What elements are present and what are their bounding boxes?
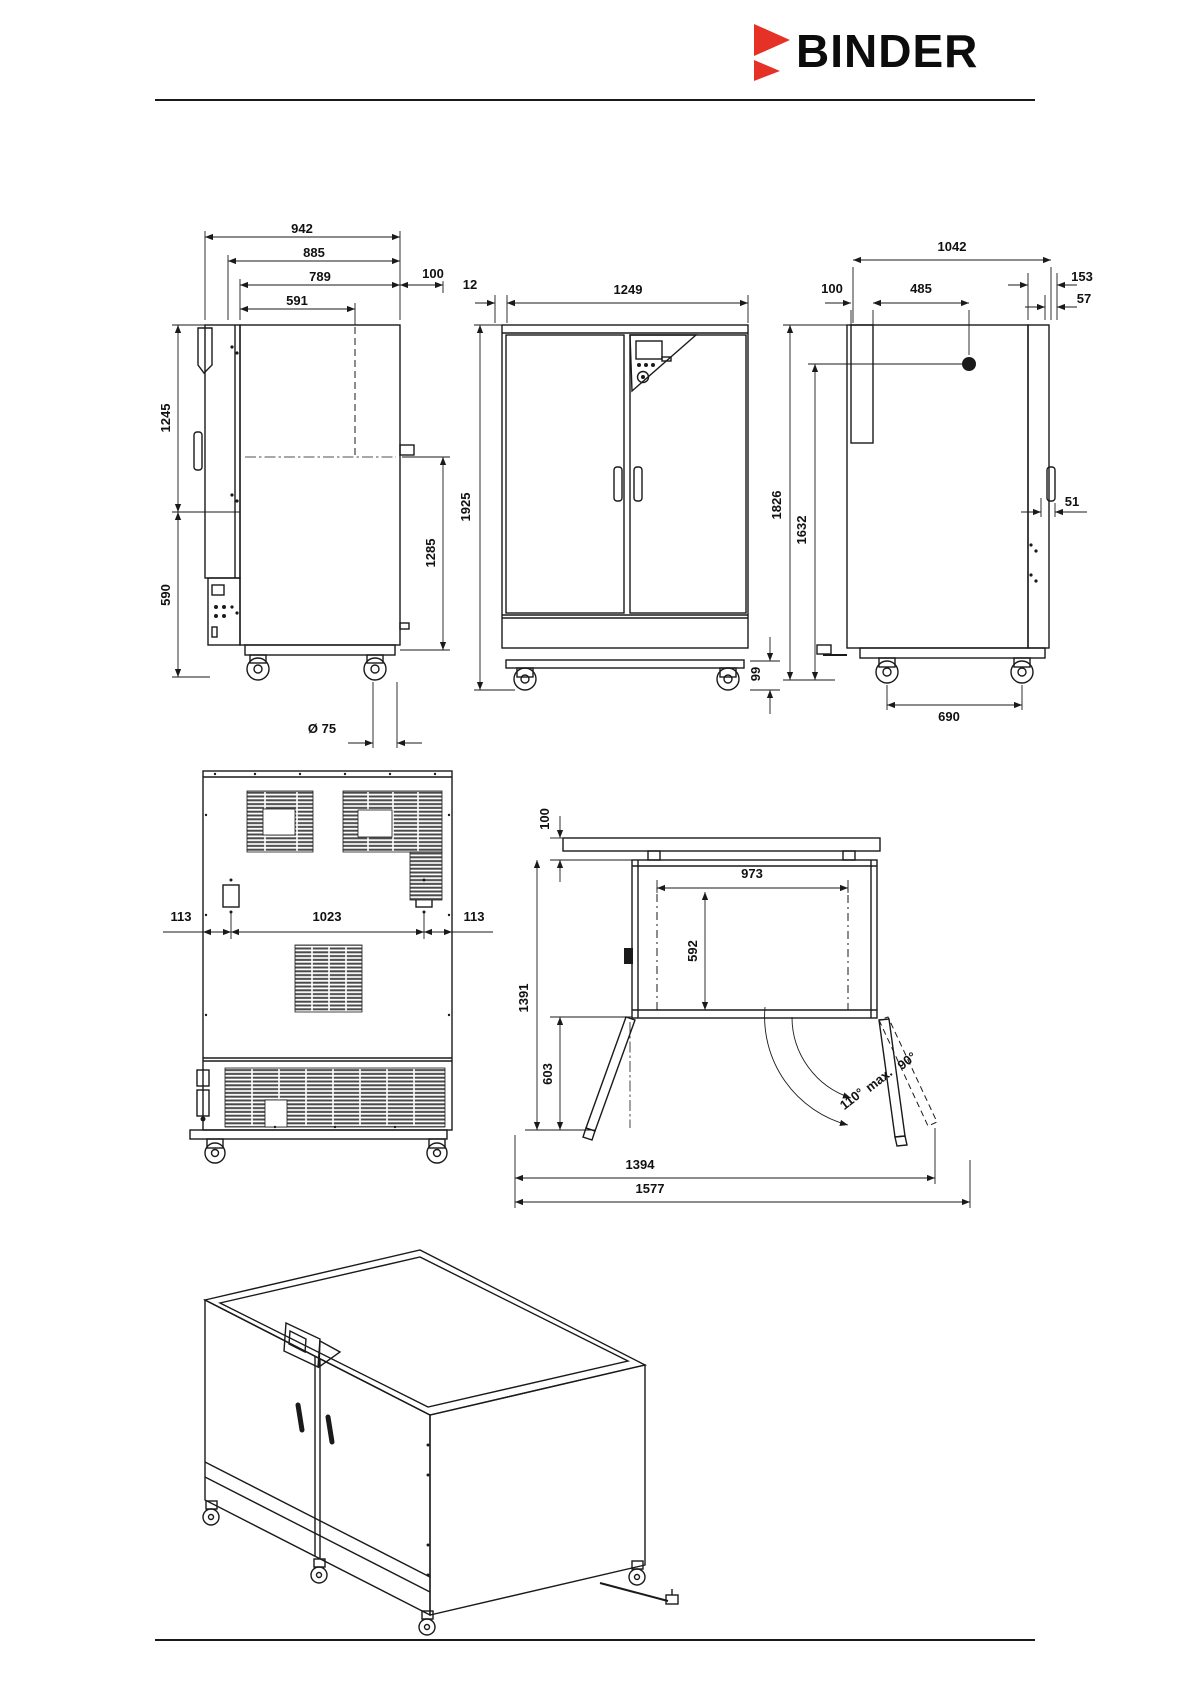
dim-right-port-offset: 485 xyxy=(908,282,934,296)
footer-rule xyxy=(155,1639,1035,1641)
brand-name: BINDER xyxy=(796,28,978,74)
front-view: 12 1249 1925 99 xyxy=(430,255,760,715)
dim-top-total-depth: 1391 xyxy=(517,982,531,1015)
side-view-right: 1042 100 485 153 57 1826 1632 51 690 xyxy=(725,215,1115,715)
dim-side-height-upper: 1245 xyxy=(159,402,173,435)
front-view-drawing xyxy=(430,255,760,715)
dim-side-total-depth: 942 xyxy=(289,222,315,236)
dim-side-height-lower: 590 xyxy=(159,582,173,608)
dim-right-handle-offset: 51 xyxy=(1063,495,1081,509)
dim-front-total-height: 1925 xyxy=(459,491,473,524)
top-view: 100 973 592 1391 603 90° max. 110° 1394 … xyxy=(480,730,1010,1215)
dim-right-total-depth: 1042 xyxy=(936,240,969,254)
rear-view: 113 1023 113 xyxy=(85,715,485,1180)
header-rule xyxy=(155,99,1035,101)
dim-top-door-depth: 603 xyxy=(541,1061,555,1087)
rear-view-drawing xyxy=(85,715,485,1180)
isometric-view-drawing xyxy=(170,1215,790,1645)
dim-side-interior-depth: 591 xyxy=(284,294,310,308)
dim-top-interior-width: 973 xyxy=(739,867,765,881)
dim-front-total-width: 1249 xyxy=(612,283,645,297)
dim-front-door-offset: 12 xyxy=(461,278,479,292)
dim-top-interior-depth: 592 xyxy=(686,938,700,964)
manual-page: BINDER xyxy=(0,0,1191,1684)
side-view-left-drawing xyxy=(150,195,460,755)
binder-logo-icon xyxy=(752,20,796,82)
dim-right-caster-spacing: 690 xyxy=(936,710,962,724)
top-view-drawing xyxy=(480,730,1010,1215)
isometric-view xyxy=(170,1215,790,1645)
dim-right-door-depth: 153 xyxy=(1069,270,1095,284)
dim-right-wall-distance: 100 xyxy=(819,282,845,296)
side-view-left: 942 885 789 591 100 1245 590 1285 Ø 75 xyxy=(150,195,460,755)
binder-logo: BINDER xyxy=(752,20,1052,82)
dim-right-total-height: 1826 xyxy=(770,489,784,522)
dim-rear-offset-left: 113 xyxy=(169,910,194,924)
dim-right-port-height: 1632 xyxy=(795,514,809,547)
dim-right-handle-depth: 57 xyxy=(1075,292,1093,306)
dim-side-housing-depth: 885 xyxy=(301,246,327,260)
dim-rear-anchor-spacing: 1023 xyxy=(311,910,344,924)
dim-side-door-depth: 789 xyxy=(307,270,333,284)
dim-top-wall-distance: 100 xyxy=(538,806,552,832)
dim-top-open-width-inner: 1394 xyxy=(624,1158,657,1172)
dim-top-open-width-outer: 1577 xyxy=(634,1182,667,1196)
